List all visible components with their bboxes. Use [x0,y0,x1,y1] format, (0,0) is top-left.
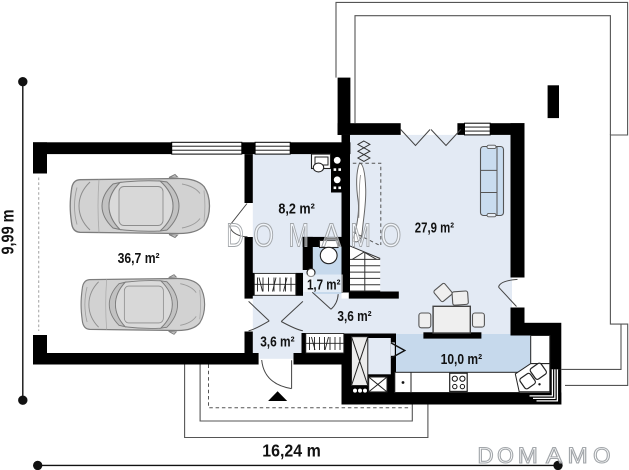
svg-text:D: D [478,443,494,468]
svg-text:9,99 m: 9,99 m [0,210,17,255]
svg-text:M: M [288,217,309,254]
svg-text:A: A [322,217,341,254]
svg-text:M: M [350,217,371,254]
svg-text:3,6 m²: 3,6 m² [260,334,295,350]
svg-text:16,24 m: 16,24 m [262,440,321,460]
svg-text:1,7 m²: 1,7 m² [307,278,341,294]
svg-text:O: O [253,217,274,254]
svg-text:M: M [518,443,538,468]
svg-text:O: O [593,443,610,468]
svg-text:27,9 m²: 27,9 m² [415,220,454,236]
svg-text:O: O [497,443,514,468]
svg-text:8,2 m²: 8,2 m² [278,202,315,218]
svg-text:A: A [546,443,563,468]
svg-text:D: D [226,217,243,254]
svg-text:36,7 m²: 36,7 m² [118,251,160,267]
svg-text:10,0 m²: 10,0 m² [441,352,483,368]
svg-text:O: O [381,217,402,254]
svg-text:3,6 m²: 3,6 m² [337,309,371,325]
svg-text:M: M [568,443,588,468]
